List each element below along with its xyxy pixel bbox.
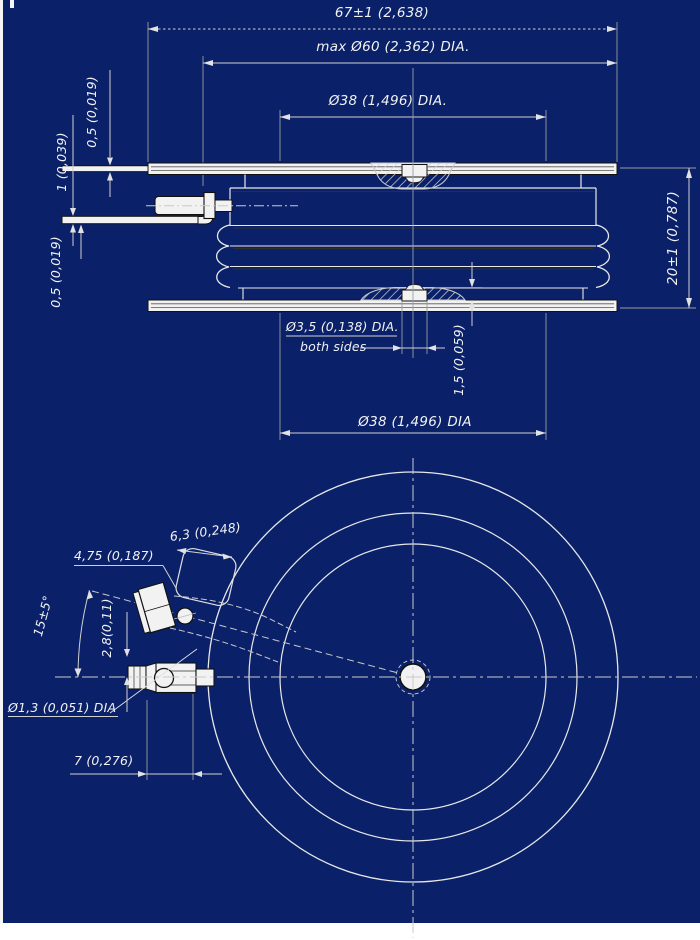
label-recess-depth: 1,5 (0,059) [451, 324, 466, 396]
label-lead-thickness: 0,5 (0,019) [48, 236, 63, 308]
label-overall-width: 67±1 (2,638) [335, 5, 429, 21]
label-pole-diameter-bottom: Ø38 (1,496) DIA [357, 414, 472, 430]
technical-drawing: 67±1 (2,638) max Ø60 (2,362) DIA. Ø38 (1… [0, 0, 700, 940]
label-height: 20±1 (0,787) [665, 191, 681, 285]
label-flange-thickness: 0,5 (0,019) [84, 76, 99, 148]
label-terminal-width: 4,75 (0,187) [74, 548, 154, 563]
page-edge-strip [0, 0, 3, 923]
blueprint-page: 67±1 (2,638) max Ø60 (2,362) DIA. Ø38 (1… [0, 0, 700, 940]
label-hole-diameter: Ø1,3 (0,051) DIA [7, 700, 116, 715]
flange-lead-strip [62, 166, 148, 172]
dim-hole-diameter: Ø1,3 (0,051) DIA [7, 700, 118, 717]
cathode-recess [402, 290, 427, 301]
bottom-flange [148, 300, 617, 312]
label-lead-length: 7 (0,276) [74, 753, 133, 768]
gate-wire [62, 216, 200, 223]
page-edge-tick [10, 0, 14, 8]
label-max-diameter: max Ø60 (2,362) DIA. [316, 39, 469, 55]
label-recess-diameter: Ø3,5 (0,138) DIA. [285, 319, 399, 334]
anode-recess [402, 165, 427, 178]
label-pole-diameter-top: Ø38 (1,496) DIA. [328, 93, 448, 109]
label-gate-offset: 2,8(0,11) [99, 598, 114, 657]
label-gate-lead: 1 (0,039) [54, 132, 69, 191]
blueprint-background [0, 0, 700, 923]
label-both-sides: both sides [300, 339, 367, 354]
